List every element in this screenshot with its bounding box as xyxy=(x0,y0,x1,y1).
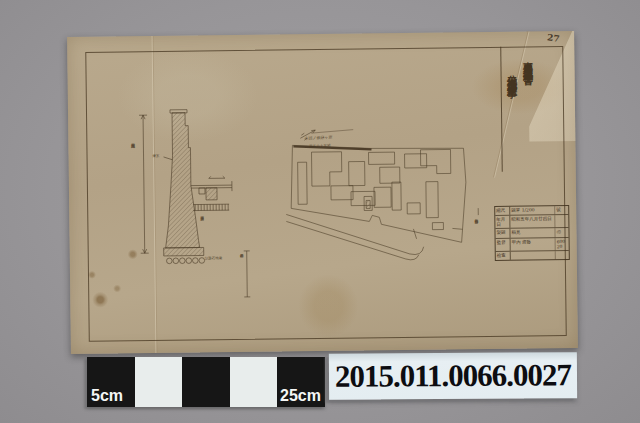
scale-label-5cm: 5cm xyxy=(91,387,123,405)
plan-legend-label: 凡例 修繕部分 xyxy=(474,216,478,256)
table-row-value: 圖單 1/200 xyxy=(510,206,555,215)
scale-segment-black: 5cm xyxy=(87,357,135,407)
table-row-value: 稻見 xyxy=(510,228,555,237)
table-row-label: 年月日 xyxy=(495,216,510,228)
table-row-value: 昭和五年八月廿四日 xyxy=(510,215,555,228)
wall-section-drawing xyxy=(139,109,250,298)
table-row-label: 檢查 xyxy=(496,251,511,260)
scale-segment-black xyxy=(182,357,230,407)
scale-label-25cm: 25cm xyxy=(280,387,321,405)
scale-segment-white xyxy=(230,357,278,407)
table-row-value2: ㊞ xyxy=(555,228,568,236)
table-row-value: 甲內 齊藤 xyxy=(511,238,556,251)
table-row-label: 監督 xyxy=(496,238,511,250)
table-row-label: 製圖 xyxy=(495,229,510,238)
table-row: 檢查 xyxy=(496,251,569,260)
table-row: 年月日 昭和五年八月廿四日 xyxy=(495,215,568,229)
technical-drawing xyxy=(67,31,578,355)
section-height-dimension-label: 九尺五寸塀高 xyxy=(130,140,136,202)
section-existing-wall-label: 既設煉瓦塀 xyxy=(200,213,204,247)
accession-number-card: 2015.011.0066.0027 xyxy=(329,352,577,400)
section-brick-label: 煉瓦 xyxy=(153,154,160,158)
section-scale-note: 縮尺二十分ノ一 xyxy=(240,251,245,301)
table-row-value2: 600 20 xyxy=(556,238,569,250)
section-footing-label: 割栗石地業 xyxy=(205,256,223,260)
table-row-value2 xyxy=(555,215,568,227)
accession-number: 2015.011.0066.0027 xyxy=(335,357,571,395)
table-row-label: 縮尺 xyxy=(495,207,510,216)
scale-segment-black: 25cm xyxy=(277,357,325,407)
drawing-paper: 27 專賣局台北酒工場官舎 分工場煉瓦塀修繕工事 xyxy=(67,31,578,354)
table-row-value xyxy=(511,251,556,260)
table-row: 監督 甲內 齊藤 600 20 xyxy=(496,238,569,252)
table-row-value2: 號 xyxy=(555,206,568,214)
scale-segment-white xyxy=(135,357,183,407)
photographic-scale-bar: 5cm 25cm xyxy=(87,357,325,407)
title-block-table: 縮尺 圖單 1/200 號 年月日 昭和五年八月廿四日 製圖 稻見 ㊞ 監督 甲… xyxy=(494,205,570,261)
table-row-value2 xyxy=(556,251,569,259)
